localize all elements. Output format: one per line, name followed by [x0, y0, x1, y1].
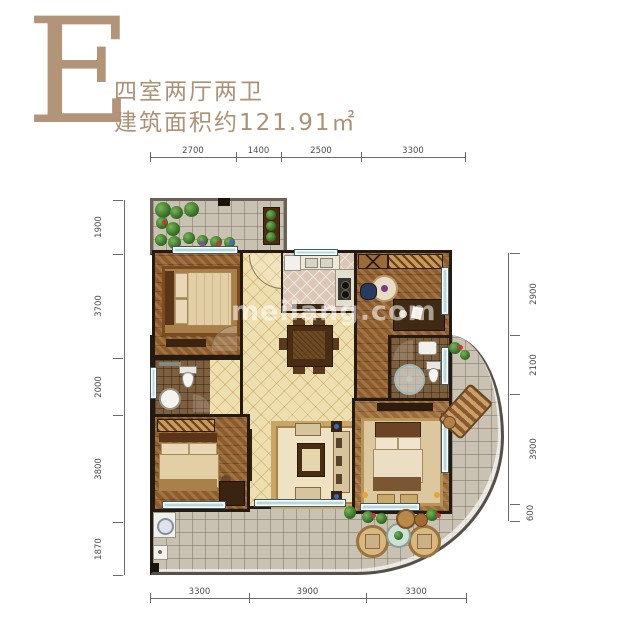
dimension-right: 2900 2100 3900 600 — [508, 253, 520, 521]
plant-icon — [166, 222, 180, 236]
toilet-bowl — [182, 372, 194, 388]
dim-segment: 3300 — [150, 588, 249, 599]
dresser — [166, 339, 206, 347]
dim-segment: 2100 — [508, 335, 521, 394]
plant-icon — [183, 232, 195, 244]
dim-segment: 2900 — [508, 253, 521, 335]
sofa — [333, 431, 350, 493]
dim-segment: 2500 — [281, 147, 361, 158]
flower-icon — [229, 240, 234, 245]
window — [254, 499, 346, 507]
flower-icon — [436, 513, 441, 518]
armchair — [295, 423, 321, 436]
side-table — [331, 421, 342, 432]
wall-corner — [218, 198, 230, 206]
dimension-left: 1900 3700 2000 3800 1870 — [112, 200, 124, 575]
dim-segment: 3700 — [112, 254, 125, 358]
wood-side-table — [396, 509, 416, 529]
vase — [334, 424, 339, 429]
dim-segment: 1400 — [236, 147, 281, 158]
bed-headboard — [375, 422, 421, 438]
floor-plan — [150, 195, 500, 580]
table-top — [302, 449, 320, 471]
flower-icon — [162, 220, 167, 225]
plant-icon — [155, 202, 171, 218]
wardrobe — [157, 419, 215, 432]
plant-icon — [184, 202, 199, 217]
plant-icon — [266, 221, 276, 231]
hallway — [354, 335, 391, 398]
shower-drain — [406, 376, 412, 382]
plant-icon — [460, 350, 470, 360]
chair-cushion — [365, 534, 380, 549]
dim-segment: 1870 — [112, 522, 125, 575]
terrace-stool — [443, 416, 456, 429]
plant-stand — [263, 207, 280, 245]
kitchen-counter — [300, 255, 340, 270]
dim-segment: 3300 — [366, 588, 466, 599]
area-title: 建筑面积约121.91㎡ — [114, 103, 356, 137]
bathroom-sink — [418, 341, 437, 355]
plant-icon — [266, 210, 276, 220]
bed-mattress — [187, 272, 232, 326]
planter-pot — [414, 513, 428, 527]
plant-icon — [266, 232, 276, 242]
dot — [158, 550, 162, 554]
room-master-bedroom — [352, 398, 452, 514]
dim-segment: 2700 — [150, 147, 236, 158]
flower-icon — [371, 513, 376, 518]
dim-segment: 600 — [508, 504, 521, 521]
dimension-top: 2700 1400 2500 3300 — [150, 147, 465, 158]
closet-box — [358, 254, 388, 269]
dim-segment: 3300 — [361, 147, 465, 158]
wicker-chair — [408, 525, 441, 558]
utility-box — [153, 545, 168, 560]
washer-door — [157, 518, 174, 535]
dimension-bottom: 3300 3900 3300 — [150, 588, 466, 599]
fridge — [284, 255, 301, 271]
dining-table — [287, 325, 333, 367]
layout-title: 四室两厅两卫 — [114, 72, 264, 106]
flower-icon — [381, 285, 388, 292]
table-top — [293, 331, 325, 359]
plant-icon — [376, 513, 387, 524]
floor-lamp — [362, 492, 368, 498]
door-arc — [193, 394, 211, 412]
entry-door-arc — [249, 255, 283, 289]
dim-segment: 2000 — [112, 358, 125, 415]
chair-cushion — [417, 534, 432, 549]
flower-icon — [458, 345, 463, 350]
door-arc — [393, 340, 413, 360]
bathroom-sink — [159, 388, 181, 410]
plant-icon — [344, 506, 356, 519]
dining-chair — [313, 366, 325, 374]
window — [172, 246, 238, 254]
coffee-table — [297, 443, 325, 477]
bed-blanket — [373, 477, 421, 491]
room-bathroom-1 — [152, 357, 216, 420]
bed-blanket — [159, 479, 217, 491]
window — [294, 249, 338, 256]
dim-segment: 1900 — [112, 200, 125, 254]
bed-headboard — [159, 433, 217, 442]
washing-machine — [153, 512, 176, 538]
room-bedroom-2 — [152, 414, 250, 512]
toilet-bowl — [428, 368, 439, 383]
sink — [320, 258, 333, 268]
hall-2 — [210, 357, 240, 420]
sofa-cushion — [336, 456, 342, 466]
dining-chair — [293, 366, 305, 374]
sofa-cushion — [336, 474, 342, 484]
dim-segment: 3900 — [249, 588, 366, 599]
wall-corner — [150, 563, 159, 572]
watermark: meilang.com — [231, 296, 437, 327]
dim-segment: 3900 — [508, 394, 521, 504]
floor-lamp — [434, 492, 440, 498]
window — [441, 347, 449, 385]
sink — [305, 258, 318, 268]
wardrobe — [388, 254, 443, 269]
bed-headboard — [165, 271, 174, 325]
wicker-chair — [356, 525, 389, 558]
dim-segment: 3800 — [112, 415, 125, 522]
sofa-cushion — [336, 438, 342, 448]
plant-icon — [155, 234, 167, 246]
window — [441, 267, 449, 315]
shower — [394, 364, 425, 395]
dining-chair — [279, 338, 287, 350]
burner — [341, 281, 350, 290]
towel-rack — [159, 362, 181, 366]
window — [162, 501, 226, 509]
plant-icon — [394, 531, 403, 540]
tv-console — [377, 403, 433, 411]
plant-icon — [170, 206, 183, 219]
window — [150, 367, 157, 399]
